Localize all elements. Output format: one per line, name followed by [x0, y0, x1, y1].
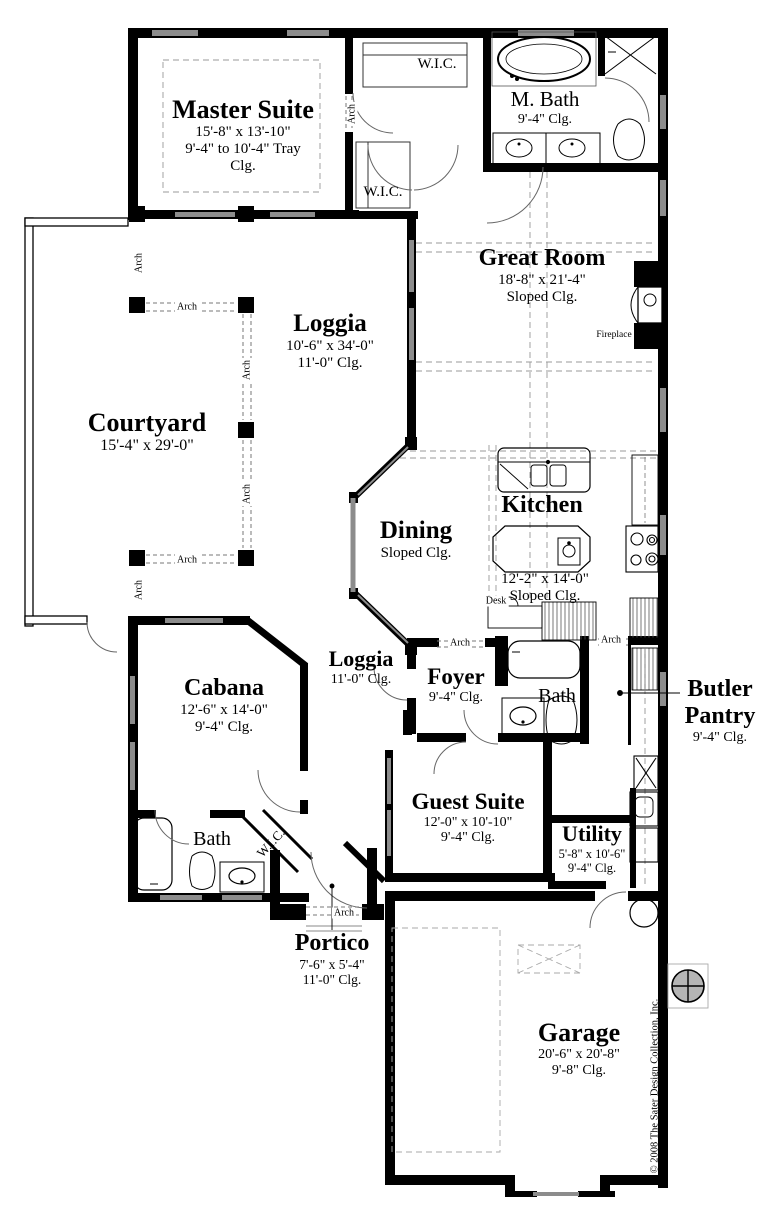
room-name: Dining: [380, 517, 452, 545]
room-label-butler-pantry: Butler Pantry 9'-4" Clg.: [685, 676, 756, 745]
room-name: Pantry: [685, 703, 756, 730]
arch-label: Arch: [242, 484, 253, 504]
room-label-foyer: Foyer 9'-4" Clg.: [427, 664, 484, 705]
room-label-dining: Dining Sloped Clg.: [380, 517, 452, 562]
arch-note: Arch: [175, 302, 199, 313]
room-dims: 18'-8" x 21'-4": [479, 272, 606, 289]
arch-note: Arch: [134, 251, 145, 275]
kitchen-island-fixture: [493, 526, 590, 572]
room-label-wic-upper: W.I.C.: [417, 56, 456, 73]
floor-plan-canvas: Master Suite 15'-8" x 13'-10" 9'-4" to 1…: [0, 0, 775, 1224]
room-name: W.I.C.: [417, 56, 456, 72]
copyright-text: © 2008 The Sater Design Collection, Inc.: [650, 999, 661, 1174]
arch-label: Arch: [134, 253, 145, 273]
room-name: Loggia: [286, 310, 374, 338]
room-dims: 12'-2" x 14'-0": [501, 571, 589, 588]
arch-note: Arch: [599, 635, 623, 646]
room-label-loggia-entry: Loggia 11'-0" Clg.: [329, 647, 394, 687]
arch-note: Arch: [242, 482, 253, 506]
desk-label: Desk: [486, 596, 507, 607]
room-dims: 10'-6" x 34'-0": [286, 338, 374, 355]
master-vanity-fixture: [493, 133, 600, 165]
room-label-portico: Portico 7'-6" x 5'-4" 11'-0" Clg.: [295, 930, 370, 987]
room-name: Great Room: [479, 245, 606, 272]
master-tub-fixture: [492, 32, 596, 86]
room-dims: 7'-6" x 5'-4": [295, 957, 370, 972]
arch-label: Arch: [601, 635, 621, 646]
arch-label: Arch: [177, 555, 197, 566]
room-ceiling: 9'-4" Clg.: [511, 112, 580, 128]
room-name: Guest Suite: [411, 789, 524, 815]
room-name: Courtyard: [88, 408, 206, 437]
arch-note: Arch: [332, 908, 356, 919]
room-ceiling: Sloped Clg.: [380, 545, 452, 562]
room-ceiling: 11'-0" Clg.: [329, 672, 394, 688]
room-label-courtyard: Courtyard 15'-4" x 29'-0": [88, 408, 206, 455]
room-label-guest-suite: Guest Suite 12'-0" x 10'-10" 9'-4" Clg.: [411, 789, 524, 846]
arch-note: Arch: [134, 578, 145, 602]
room-ceiling: 9'-4" Clg.: [411, 830, 524, 846]
room-dims: 20'-6" x 20'-8": [538, 1047, 620, 1063]
arch-note: Arch: [242, 358, 253, 382]
room-name: Garage: [538, 1018, 620, 1047]
room-label-bath-guest: Bath: [538, 685, 576, 707]
round-window-fixture: [668, 964, 708, 1008]
copyright-label: © 2008 The Sater Design Collection, Inc.: [650, 999, 661, 1174]
master-shower-fixture: [605, 36, 656, 74]
room-name: Loggia: [329, 647, 394, 672]
room-name: M. Bath: [511, 88, 580, 112]
room-dims: 5'-8" x 10'-6": [559, 847, 626, 861]
room-name: Portico: [295, 930, 370, 957]
room-name: Kitchen: [501, 492, 582, 519]
room-dims: 15'-8" x 13'-10": [172, 124, 314, 141]
room-label-garage: Garage 20'-6" x 20'-8" 9'-8" Clg.: [538, 1018, 620, 1078]
room-label-bath-cabana: Bath: [193, 828, 231, 850]
room-label-master-bath: M. Bath 9'-4" Clg.: [511, 88, 580, 127]
room-label-master-suite: Master Suite 15'-8" x 13'-10" 9'-4" to 1…: [172, 95, 314, 175]
room-name: Butler: [685, 676, 756, 703]
fireplace-label: Fireplace: [596, 330, 631, 340]
room-ceiling: 11'-0" Clg.: [286, 355, 374, 372]
water-heater-fixture: [630, 899, 658, 927]
room-ceiling: 9'-8" Clg.: [538, 1063, 620, 1079]
room-ceiling: Sloped Clg.: [479, 289, 606, 306]
room-dims: 15'-4" x 29'-0": [88, 437, 206, 455]
master-toilet-fixture: [614, 119, 645, 160]
room-name: Utility: [559, 822, 626, 847]
room-label-wic-lower: W.I.C.: [363, 184, 402, 201]
room-name: Foyer: [427, 664, 484, 690]
arch-label: Arch: [177, 302, 197, 313]
room-dims: 12'-6" x 14'-0": [180, 702, 268, 719]
room-ceiling: 9'-4" to 10'-4" Tray: [172, 141, 314, 158]
room-ceiling: 9'-4" Clg.: [559, 861, 626, 875]
columns: [129, 206, 254, 566]
room-label-loggia: Loggia 10'-6" x 34'-0" 11'-0" Clg.: [286, 310, 374, 372]
room-ceiling: 9'-4" Clg.: [685, 730, 756, 746]
kitchen-cabinets: [542, 455, 658, 640]
room-ceiling: Sloped Clg.: [501, 588, 589, 605]
fireplace-note: Fireplace: [594, 330, 633, 340]
room-label-great-room: Great Room 18'-8" x 21'-4" Sloped Clg.: [479, 245, 606, 305]
room-label-kitchen-title: Kitchen: [501, 492, 582, 519]
room-label-kitchen-dims: 12'-2" x 14'-0" Sloped Clg.: [501, 571, 589, 605]
room-ceiling: 11'-0" Clg.: [295, 972, 370, 987]
arch-label: Arch: [334, 908, 354, 919]
room-ceiling: 9'-4" Clg.: [427, 690, 484, 706]
room-ceiling: 9'-4" Clg.: [180, 719, 268, 736]
arch-label: Arch: [450, 638, 470, 649]
room-dims: 12'-0" x 10'-10": [411, 815, 524, 831]
arch-label: Arch: [134, 580, 145, 600]
room-name: W.I.C.: [363, 184, 402, 200]
room-name: Master Suite: [172, 95, 314, 124]
room-label-utility: Utility 5'-8" x 10'-6" 9'-4" Clg.: [559, 822, 626, 875]
arch-label: Arch: [242, 360, 253, 380]
room-ceiling: Clg.: [172, 158, 314, 175]
fireplace-fixture: [631, 261, 662, 349]
desk-note: Desk: [484, 596, 509, 607]
room-name: Bath: [538, 685, 576, 707]
arch-note: Arch: [448, 638, 472, 649]
arch-note: Arch: [347, 102, 358, 126]
kitchen-counter-fixture: [498, 448, 590, 492]
arch-note: Arch: [175, 555, 199, 566]
stove-fixture: [626, 526, 658, 572]
room-name: Cabana: [180, 675, 268, 702]
arch-label: Arch: [347, 104, 358, 124]
room-name: Bath: [193, 828, 231, 850]
room-label-cabana: Cabana 12'-6" x 14'-0" 9'-4" Clg.: [180, 675, 268, 735]
